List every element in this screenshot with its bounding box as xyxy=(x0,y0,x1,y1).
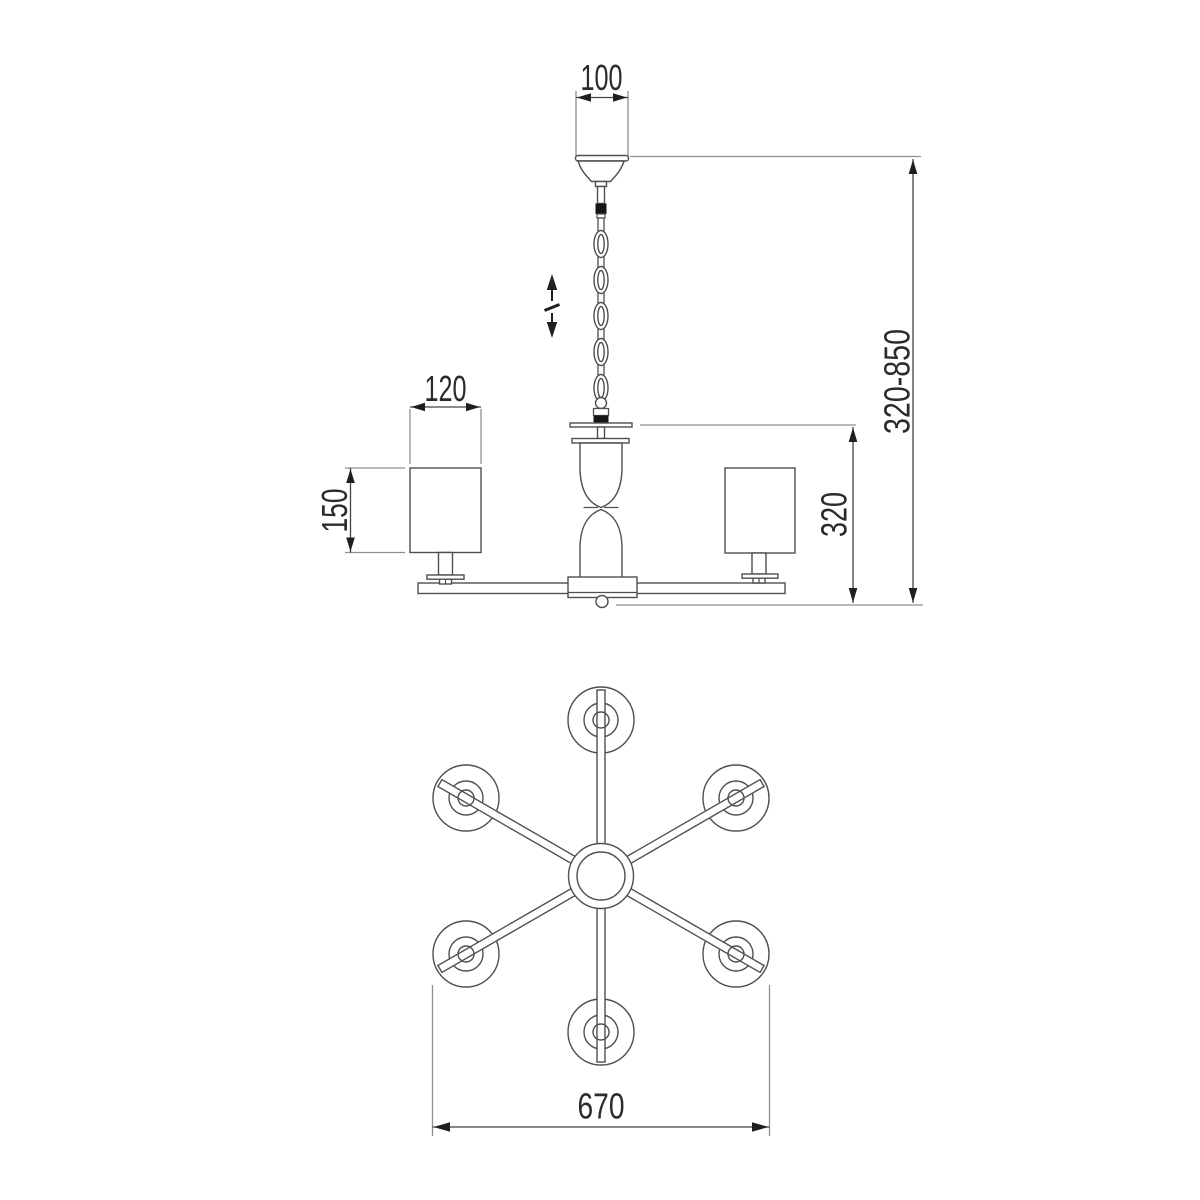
chain-connector-top xyxy=(596,204,607,215)
plan-view: 670 xyxy=(433,687,770,1136)
dimension-shade-diameter: 120 xyxy=(410,368,481,411)
suspension-chain xyxy=(594,204,609,426)
ceiling-canopy xyxy=(576,156,629,204)
canopy-stem xyxy=(598,187,605,204)
down-arrow-icon xyxy=(547,322,557,338)
arrow-down-icon xyxy=(346,538,355,552)
body-neck xyxy=(598,427,605,439)
dimension-shade-height: 150 xyxy=(314,468,355,553)
extension-lines-shade-width xyxy=(410,409,481,464)
plan-arm xyxy=(438,888,576,972)
front-view: 100 120 150 320 320-850 xyxy=(314,57,923,608)
arrow-right-icon xyxy=(466,403,480,412)
dim-label-body-height: 320 xyxy=(814,492,855,537)
chain-links xyxy=(594,231,608,402)
canopy-stem-cap xyxy=(596,182,607,187)
left-shade xyxy=(410,468,481,553)
plan-arm xyxy=(438,780,576,864)
adjustment-slash-icon xyxy=(545,305,560,311)
body-cap xyxy=(594,409,609,416)
left-candle-stem xyxy=(439,553,453,576)
arrow-up-icon xyxy=(909,160,918,175)
left-lamp xyxy=(410,468,481,584)
dimension-height-range: 320-850 xyxy=(877,159,918,603)
dimension-canopy-width: 100 xyxy=(576,57,628,102)
dim-label-height-range: 320-850 xyxy=(877,329,918,434)
chain-end-loop xyxy=(596,398,607,409)
lower-glass-body xyxy=(580,510,622,578)
arrow-left-icon xyxy=(411,403,425,412)
canopy-top-plate xyxy=(576,156,629,162)
chandelier-technical-drawing: 100 120 150 320 320-850 xyxy=(0,0,1200,1200)
dim-label-overall-diameter: 670 xyxy=(578,1086,625,1127)
arrow-up-icon xyxy=(346,469,355,483)
chain-link xyxy=(594,339,608,366)
hub-inner-circle xyxy=(577,852,625,900)
chain-link xyxy=(594,231,608,258)
canopy-bell xyxy=(578,161,624,182)
arrow-down-icon xyxy=(909,588,918,603)
arrow-left-icon xyxy=(434,1122,451,1131)
plan-arm xyxy=(626,888,764,972)
right-candle-stem xyxy=(752,553,766,574)
dim-label-shade-diameter: 120 xyxy=(425,368,467,409)
dim-label-canopy-width: 100 xyxy=(581,57,623,98)
up-arrow-icon xyxy=(547,274,557,290)
arrow-down-icon xyxy=(849,588,858,603)
height-adjustment-indicator xyxy=(545,274,560,338)
arrow-right-icon xyxy=(752,1122,769,1131)
chain-link xyxy=(594,303,608,330)
chain-link xyxy=(594,267,608,294)
arrow-up-icon xyxy=(849,428,858,443)
right-lamp xyxy=(725,468,795,583)
plan-center-hub xyxy=(569,844,634,909)
upper-glass-body xyxy=(580,443,622,508)
dim-label-shade-height: 150 xyxy=(314,489,355,533)
extension-lines-canopy-width xyxy=(576,91,628,156)
ball-finial xyxy=(596,596,608,608)
right-shade xyxy=(725,468,795,553)
center-hub xyxy=(568,577,637,598)
dimension-body-height: 320 xyxy=(814,427,858,603)
plan-arm xyxy=(626,780,764,864)
chandelier-technical-drawing-page: 100 120 150 320 320-850 xyxy=(0,0,1200,1200)
